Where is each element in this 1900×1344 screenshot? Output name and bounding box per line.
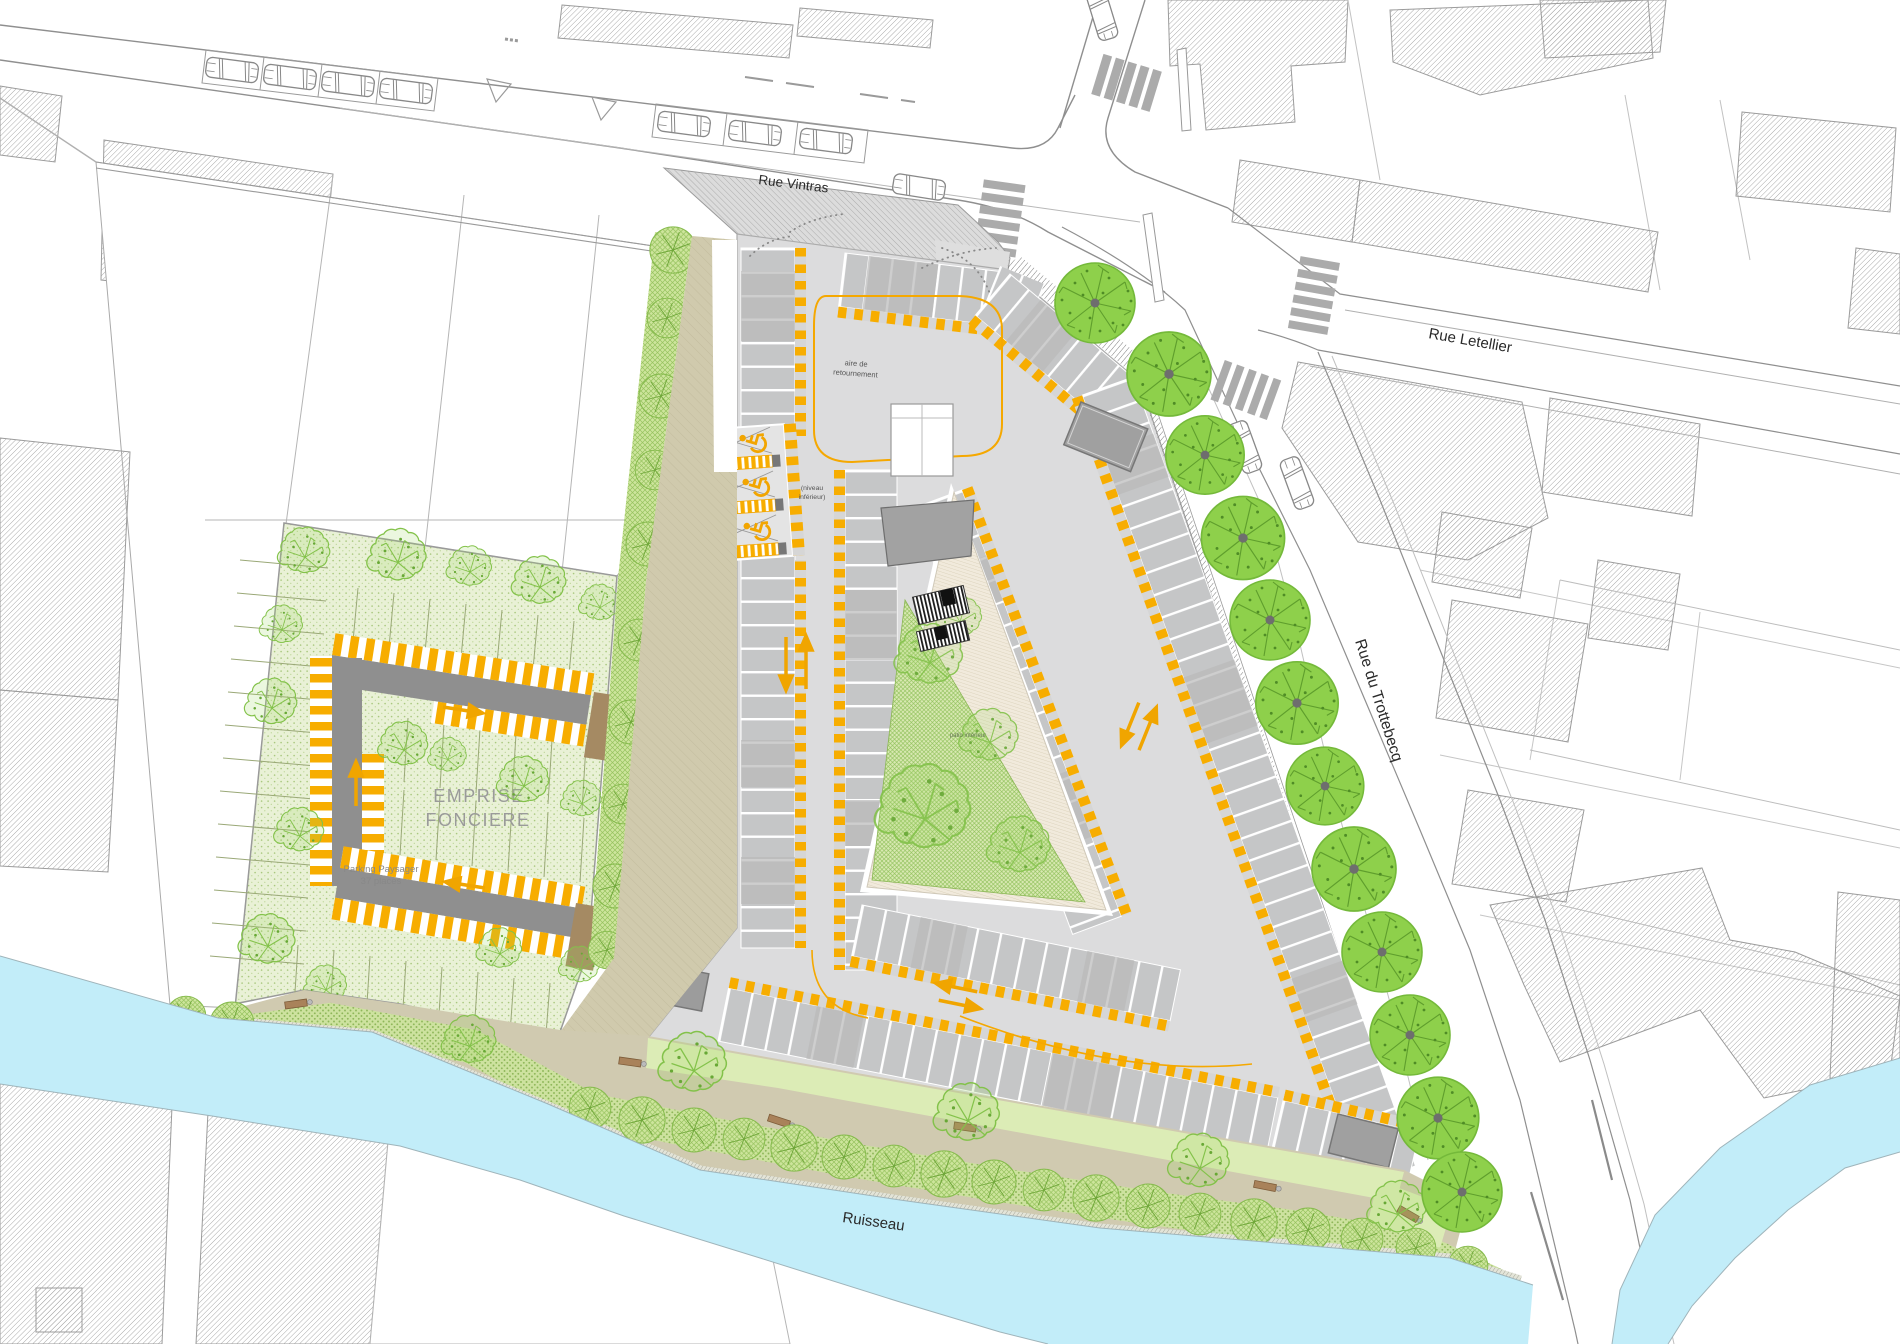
svg-text:inférieur): inférieur) <box>799 494 826 501</box>
svg-text:patio intérieur: patio intérieur <box>950 733 986 739</box>
svg-text:37 places: 37 places <box>361 876 402 887</box>
svg-text:Parking Paysager: Parking Paysager <box>344 864 419 875</box>
svg-text:aire de: aire de <box>844 358 868 369</box>
svg-text:FONCIERE: FONCIERE <box>425 810 530 830</box>
svg-text:(niveau: (niveau <box>801 485 824 492</box>
